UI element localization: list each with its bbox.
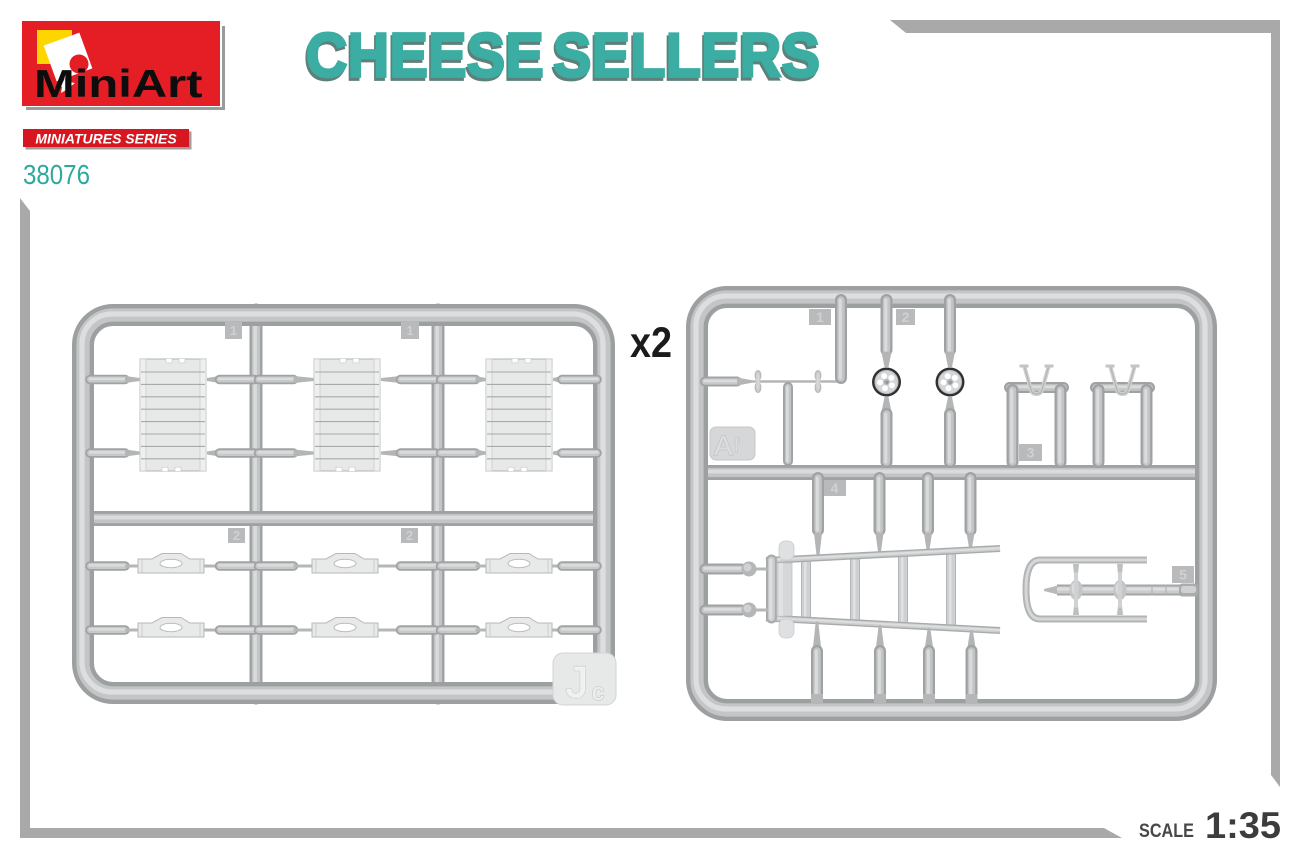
svg-text:2: 2 <box>406 528 413 543</box>
svg-text:1: 1 <box>816 309 824 325</box>
svg-text:c: c <box>592 679 604 706</box>
svg-text:J: J <box>566 658 588 707</box>
svg-text:f: f <box>734 436 740 457</box>
svg-text:CHEESE SELLERS: CHEESE SELLERS <box>306 20 820 90</box>
svg-text:3: 3 <box>1027 445 1035 461</box>
svg-text:4: 4 <box>831 480 839 496</box>
svg-text:5: 5 <box>1179 567 1187 583</box>
svg-text:38076: 38076 <box>23 158 90 190</box>
svg-text:MiniArt: MiniArt <box>34 63 203 106</box>
svg-text:x2: x2 <box>630 318 672 367</box>
svg-text:1:35: 1:35 <box>1205 804 1281 845</box>
svg-text:A: A <box>714 430 733 461</box>
svg-text:SCALE: SCALE <box>1139 820 1194 842</box>
svg-text:1: 1 <box>230 323 237 338</box>
svg-text:2: 2 <box>233 528 240 543</box>
svg-text:1: 1 <box>406 323 413 338</box>
svg-text:2: 2 <box>902 309 910 325</box>
svg-text:MINIATURES SERIES: MINIATURES SERIES <box>35 131 177 147</box>
